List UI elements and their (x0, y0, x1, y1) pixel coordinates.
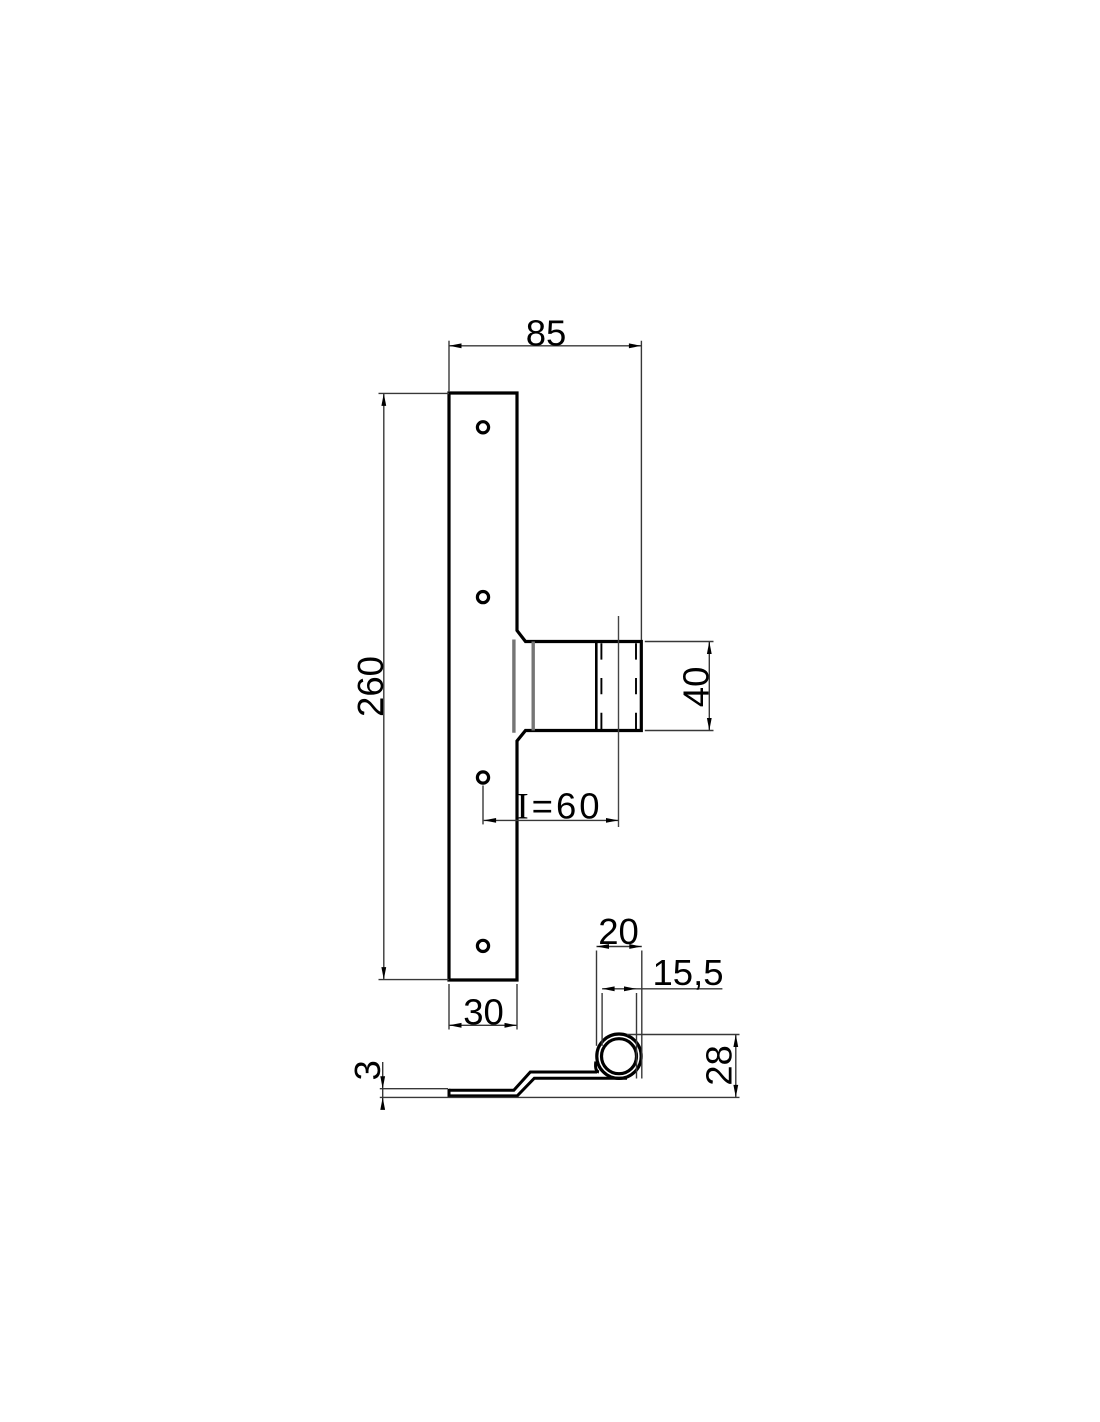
svg-text:15,5: 15,5 (652, 952, 723, 993)
svg-text:85: 85 (526, 313, 567, 354)
svg-text:28: 28 (699, 1045, 740, 1086)
svg-text:260: 260 (350, 656, 391, 717)
svg-text:3: 3 (347, 1060, 388, 1080)
svg-text:20: 20 (598, 911, 639, 952)
svg-text:I=60: I=60 (517, 786, 603, 827)
svg-text:40: 40 (676, 667, 717, 708)
svg-text:30: 30 (463, 992, 504, 1033)
